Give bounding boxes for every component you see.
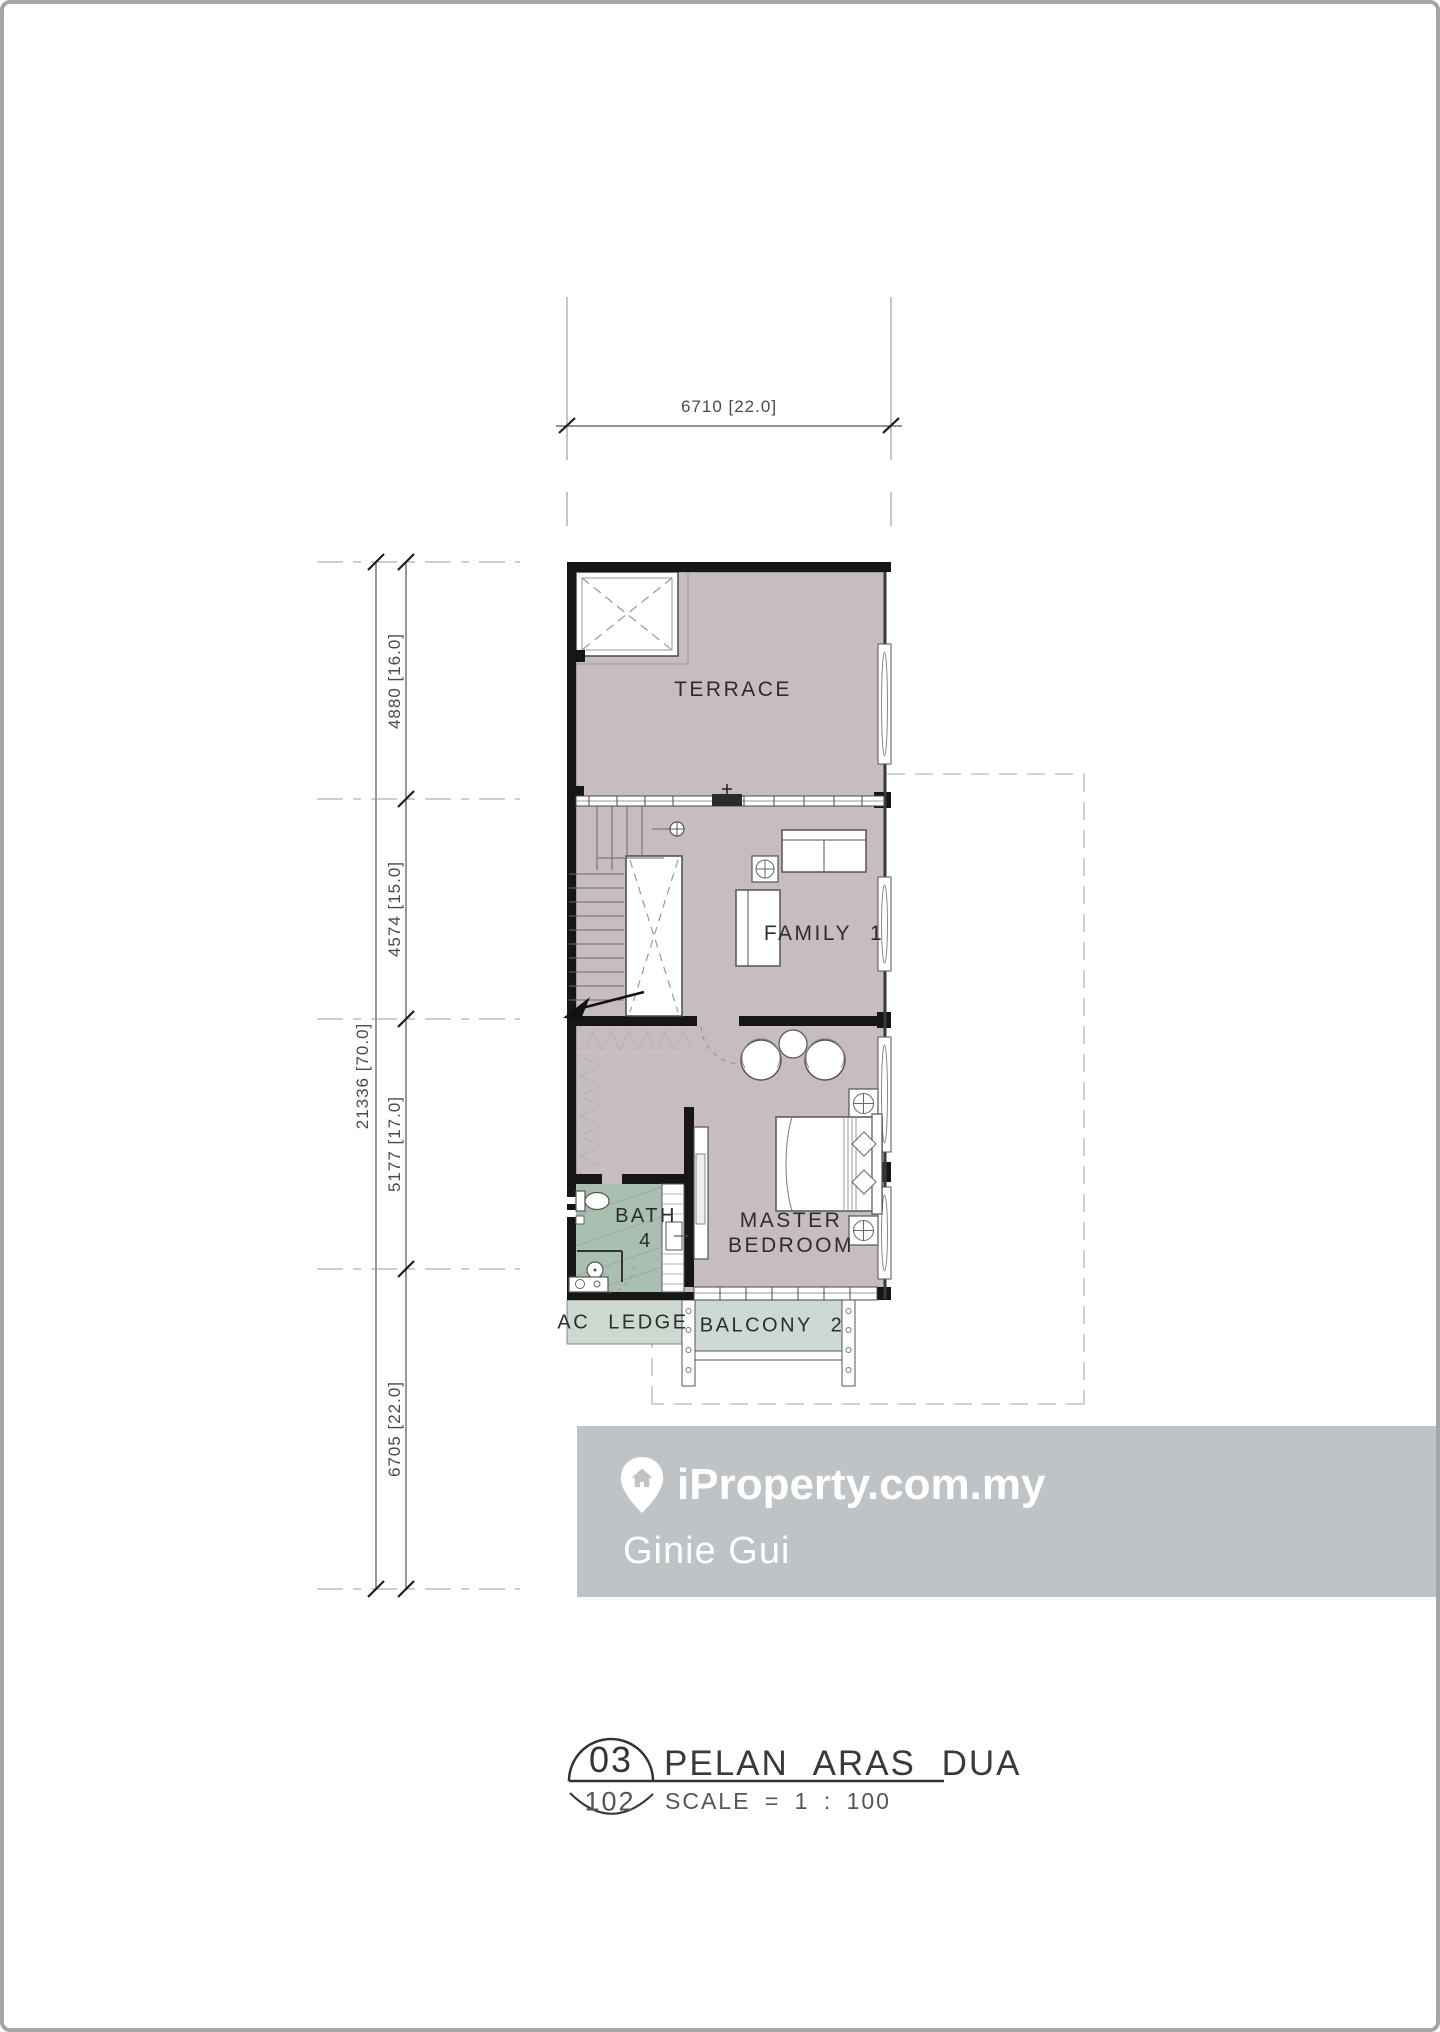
room-label-terrace: TERRACE xyxy=(674,678,792,702)
tv-console xyxy=(694,1127,708,1259)
dimension-overall-depth: 21336 [70.0] xyxy=(353,1023,373,1130)
dimension-segment-2: 4574 [15.0] xyxy=(385,861,405,957)
dimension-segment-1: 4880 [16.0] xyxy=(385,633,405,729)
floor-plan-drawing xyxy=(4,4,1440,2032)
location-pin-icon xyxy=(619,1456,665,1514)
agent-name: Ginie Gui xyxy=(623,1530,790,1573)
room-label-ac-ledge: AC LEDGE xyxy=(557,1312,688,1335)
titleblock-title: PELAN ARAS DUA xyxy=(664,1744,1022,1784)
room-label-master-bedroom: MASTER BEDROOM xyxy=(728,1208,854,1258)
louver-window xyxy=(567,1210,576,1217)
skylight-void xyxy=(576,572,688,664)
titleblock-drawing-number: 03 xyxy=(589,1739,633,1781)
room-label-balcony: BALCONY 2 xyxy=(700,1315,844,1338)
balcony-floor xyxy=(682,1300,855,1386)
brand-wordmark: iProperty.com.my xyxy=(677,1460,1045,1510)
titleblock-sheet-number: 102 xyxy=(584,1787,635,1818)
bed xyxy=(776,1114,882,1214)
balcony-door-band xyxy=(694,1287,877,1300)
floor-plan-page: 6710 [22.0] 4880 [16.0] 4574 [15.0] 5177… xyxy=(0,0,1440,2032)
dimension-segment-4: 6705 [22.0] xyxy=(385,1381,405,1477)
watermark-banner: iProperty.com.my Ginie Gui xyxy=(577,1426,1436,1597)
louver-window xyxy=(567,1197,576,1204)
room-label-family: FAMILY 1 xyxy=(764,922,884,946)
brand-logo-row: iProperty.com.my xyxy=(619,1456,1045,1514)
titleblock-scale: SCALE = 1 : 100 xyxy=(665,1788,891,1815)
dimension-segment-3: 5177 [17.0] xyxy=(385,1096,405,1192)
dimension-top-width: 6710 [22.0] xyxy=(681,397,777,417)
room-label-bath: BATH 4 xyxy=(615,1204,677,1254)
